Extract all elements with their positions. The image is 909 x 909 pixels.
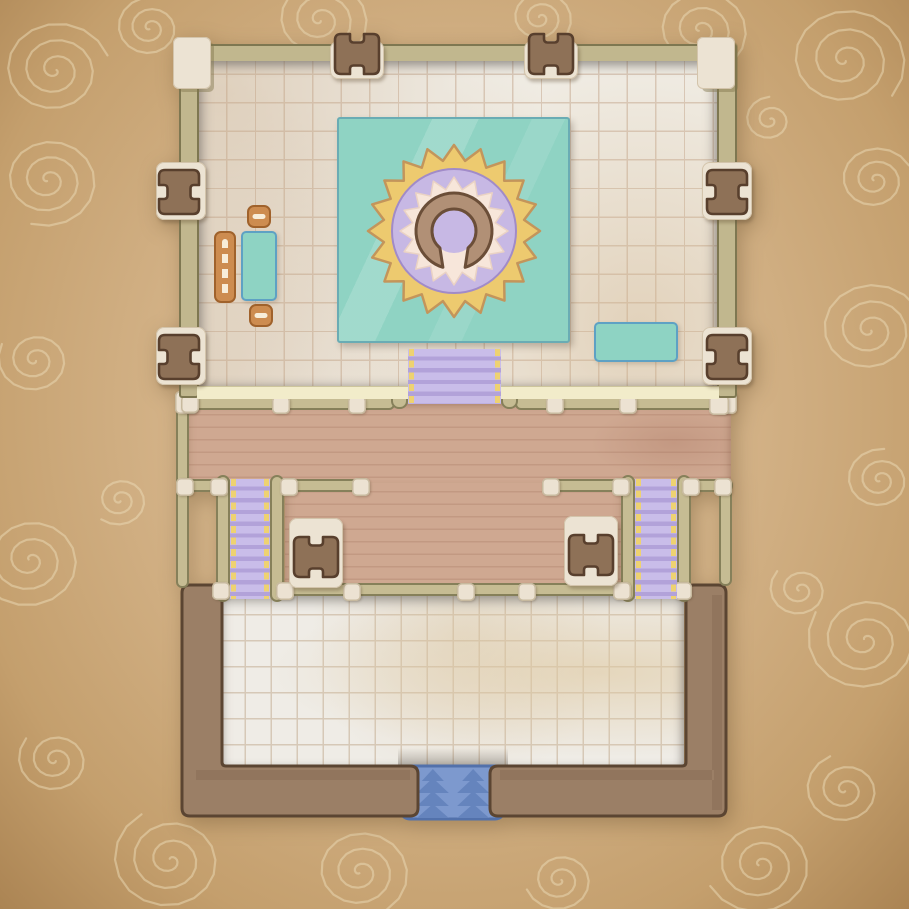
hall-table [241, 231, 277, 301]
courtyard-room-floor [220, 592, 684, 770]
stair-edge-yellow [636, 479, 641, 599]
hall-bench [214, 231, 236, 303]
stair-edge-yellow [264, 479, 269, 599]
ritual-rug [337, 117, 570, 343]
hall-west-door-north-double-door-icon [158, 169, 200, 215]
railing-post [176, 478, 194, 496]
stair-edge-yellow [409, 349, 414, 404]
door-leaf-shape [569, 535, 613, 575]
temple-floorplan [0, 0, 909, 909]
railing-post [613, 582, 631, 600]
hall-chair-north [247, 205, 271, 228]
stair-edge-yellow [671, 479, 676, 599]
hall-west-door-south-double-door-icon [158, 334, 200, 380]
hall-east-door-north-double-door-icon [706, 169, 748, 215]
stairs-west [230, 479, 270, 599]
hall-corner-block-nw [173, 37, 211, 89]
stairs-east [635, 479, 677, 599]
entrance-stairs-blue [397, 763, 509, 823]
stair-edge-yellow [231, 479, 236, 599]
chair-dash [255, 313, 268, 318]
railing-post [542, 478, 560, 496]
railing-post [518, 583, 536, 601]
hall-corner-block-ne [697, 37, 735, 89]
chair-dash [253, 214, 266, 219]
hall-side-table [594, 322, 678, 362]
railing-post [212, 582, 230, 600]
summoning-circle [337, 117, 571, 345]
door-leaf-shape [707, 170, 747, 214]
deck-door-west-double-door-icon [293, 536, 339, 578]
door-leaf-shape [335, 34, 379, 74]
railing-post [352, 478, 370, 496]
hall-chair-south [249, 304, 273, 327]
bench-slats [222, 239, 228, 295]
blue-stairs-body [400, 766, 505, 819]
door-leaf-shape [707, 335, 747, 379]
door-leaf-shape [294, 537, 338, 577]
parchment-background [0, 0, 909, 909]
railing-post [457, 583, 475, 601]
hall-east-door-south-double-door-icon [706, 334, 748, 380]
railing-post [280, 478, 298, 496]
door-leaf-shape [529, 34, 573, 74]
hall-north-door-east-double-door-icon [528, 33, 574, 75]
hall-north-door-west-double-door-icon [334, 33, 380, 75]
deck-door-east-double-door-icon [568, 534, 614, 576]
door-leaf-shape [159, 335, 199, 379]
door-leaf-shape [159, 170, 199, 214]
railing-post [682, 478, 700, 496]
railing-post [612, 478, 630, 496]
railing-post [210, 478, 228, 496]
deck-upper-platform [186, 403, 731, 483]
railing-post [714, 478, 732, 496]
railing-post [343, 583, 361, 601]
stairs-hall-to-deck [408, 349, 501, 404]
stair-edge-yellow [495, 349, 500, 404]
